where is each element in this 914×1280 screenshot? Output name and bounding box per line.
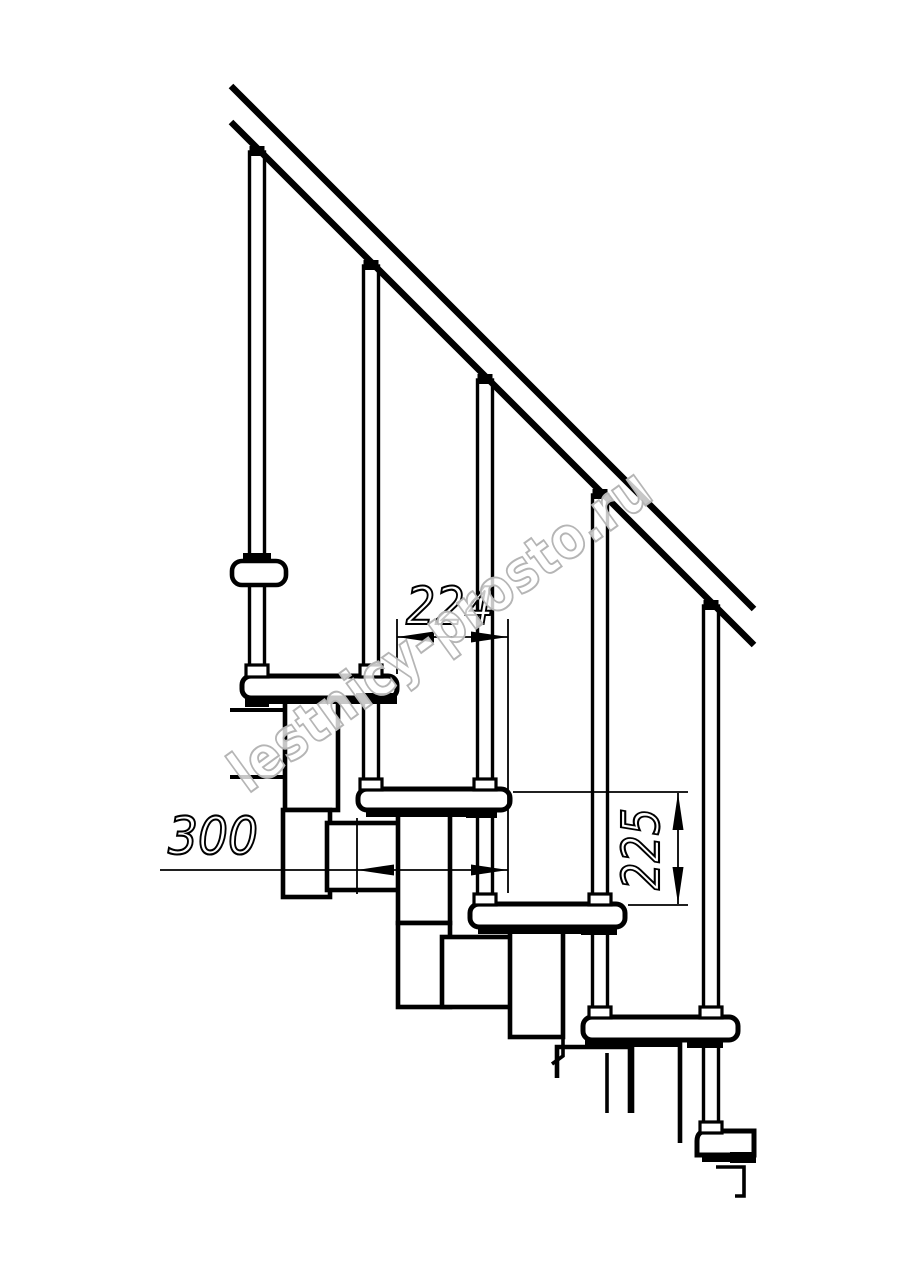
baluster-cap-icon [364,260,379,270]
tread-4 [583,1017,738,1040]
baluster-cap-icon [478,374,493,384]
collar-icon [700,1122,722,1133]
baluster-4 [593,495,608,1017]
support-column-1-lower [283,810,330,897]
collar-icon [700,1007,722,1018]
collar-icon [360,779,382,790]
collar-icon [246,665,268,677]
support-module-3 [557,1047,632,1113]
support-column-4 [630,1042,680,1143]
baluster-cap-icon [250,146,265,156]
arrowhead-down-icon [673,867,684,904]
dimension-300-label: 300 [168,807,258,867]
baluster-5 [704,606,719,1131]
baluster-1-bracket [232,553,286,585]
wall-bracket [232,561,286,585]
dimension-225-label: 225 [612,808,672,890]
baluster-1 [250,152,265,700]
collar-icon [474,779,496,790]
staircase-elevation-drawing: 224 300 225 lestnicy-prosto.ru [0,0,914,1280]
support-column-2-upper [398,810,450,923]
support-column-3 [510,925,563,1037]
collar-icon [589,1007,611,1018]
collar-icon [589,894,611,905]
support-module-2 [442,937,517,1007]
support-module-1 [327,823,403,890]
arrowhead-up-icon [673,793,684,830]
collar-icon [474,894,496,905]
tread-2 [358,789,510,810]
baluster-cap-icon [704,600,719,610]
drawing-svg: 224 300 225 lestnicy-prosto.ru [0,0,914,1280]
tread-3 [470,904,625,927]
